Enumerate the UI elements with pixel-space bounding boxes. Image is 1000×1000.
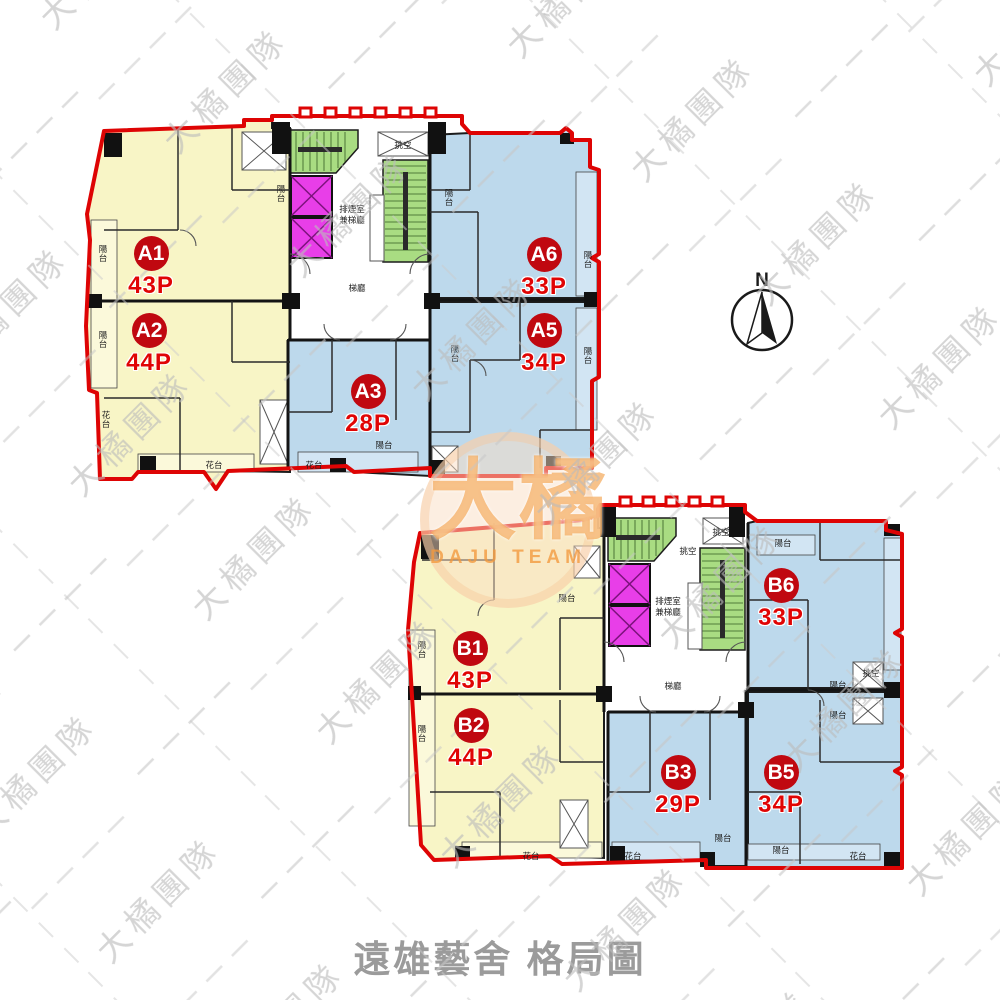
unit-badge: B5	[764, 755, 799, 790]
unit-label-b5: B5 34P	[748, 755, 814, 819]
unit-area: 43P	[437, 667, 503, 695]
unit-area: 44P	[438, 744, 504, 772]
unit-badge: B1	[453, 631, 488, 666]
unit-label-a6: A6 33P	[511, 237, 577, 301]
unit-label-a2: A2 44P	[116, 313, 182, 377]
room-annotation: 梯廳	[664, 681, 682, 691]
room-annotation: 花台	[102, 410, 111, 429]
unit-label-b3: B3 29P	[645, 755, 711, 819]
unit-area: 34P	[511, 349, 577, 377]
room-annotation: 陽台	[451, 344, 460, 363]
room-annotation: 花台	[522, 851, 539, 861]
room-annotation: 陽台	[277, 184, 286, 203]
north-compass: N	[722, 258, 802, 358]
unit-badge: B3	[661, 755, 696, 790]
room-annotation: 陽台	[418, 640, 427, 659]
room-annotation: 陽台	[558, 593, 575, 603]
unit-label-b6: B6 33P	[748, 568, 814, 632]
room-annotation: 挑空	[394, 140, 411, 150]
unit-badge: A2	[132, 313, 167, 348]
room-annotation: 陽台	[99, 244, 108, 263]
room-annotation: 陽台	[418, 724, 427, 743]
unit-area: 34P	[748, 791, 814, 819]
unit-area: 29P	[645, 791, 711, 819]
unit-badge: B6	[764, 568, 799, 603]
unit-area: 33P	[748, 604, 814, 632]
elevator-shafts-a	[291, 176, 332, 258]
compass-north-label: N	[755, 270, 769, 291]
room-annotation: 花台	[305, 460, 322, 470]
room-annotation: 陽台	[584, 346, 593, 365]
compass-needle-dark	[762, 292, 777, 344]
room-annotation: 挑空	[712, 527, 729, 537]
unit-label-b2: B2 44P	[438, 708, 504, 772]
unit-label-a3: A3 28P	[335, 374, 401, 438]
unit-badge: A6	[527, 237, 562, 272]
room-annotation: 陽台	[375, 440, 392, 450]
unit-area: 43P	[118, 272, 184, 300]
room-annotation: 陽台	[829, 680, 846, 690]
unit-area: 33P	[511, 273, 577, 301]
compass-needle-light	[747, 292, 762, 344]
room-annotation: 排煙室	[655, 596, 681, 606]
room-annotation: 陽台	[445, 188, 454, 207]
stairwell-a-2	[383, 160, 428, 262]
room-annotation: 花台	[624, 851, 641, 861]
unit-badge: B2	[454, 708, 489, 743]
room-annotation: 陽台	[714, 833, 731, 843]
unit-label-a1: A1 43P	[118, 236, 184, 300]
room-annotation: 花台	[849, 851, 866, 861]
unit-badge: A5	[527, 313, 562, 348]
room-annotation: 兼梯廳	[655, 607, 681, 617]
room-annotation: 陽台	[99, 330, 108, 349]
elevator-shafts-b	[609, 564, 650, 646]
page-title: 遠雄藝舍 格局圖	[0, 929, 1000, 983]
unit-badge: A3	[351, 374, 386, 409]
room-annotation: 陽台	[829, 710, 846, 720]
unit-badge: A1	[134, 236, 169, 271]
unit-area: 44P	[116, 349, 182, 377]
floorplan-canvas: 陽台陽台陽台陽台陽台陽台陽台陽台花台花台花台排煙室兼梯廳梯廳挑空陽台陽台陽台陽台…	[0, 0, 1000, 1000]
room-annotation: 挑空	[862, 668, 879, 678]
unit-label-a5: A5 34P	[511, 313, 577, 377]
room-annotation: 陽台	[774, 538, 791, 548]
room-annotation: 挑空	[679, 546, 696, 556]
room-annotation: 花台	[205, 460, 222, 470]
room-annotation: 陽台	[772, 845, 789, 855]
unit-area: 28P	[335, 410, 401, 438]
stairwell-b-2	[700, 548, 745, 650]
room-annotation: 梯廳	[348, 283, 366, 293]
room-annotation: 排煙室	[339, 204, 365, 214]
unit-label-b1: B1 43P	[437, 631, 503, 695]
room-annotation: 陽台	[584, 250, 593, 269]
room-annotation: 兼梯廳	[339, 215, 365, 225]
